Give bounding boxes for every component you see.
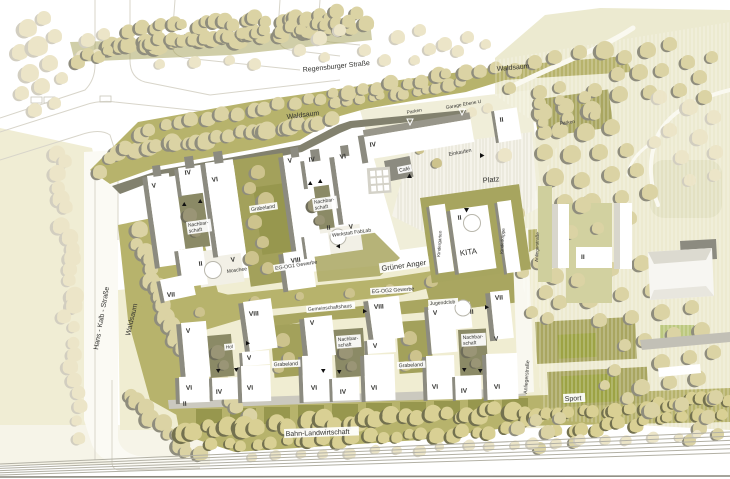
svg-text:VI: VI xyxy=(211,176,218,184)
svg-text:IV: IV xyxy=(461,388,468,395)
svg-text:VIII: VIII xyxy=(249,310,259,318)
svg-text:IV: IV xyxy=(216,389,223,396)
svg-text:schaft: schaft xyxy=(463,340,477,347)
svg-text:VI: VI xyxy=(339,153,346,161)
svg-text:Platz: Platz xyxy=(482,174,500,185)
svg-text:VIII: VIII xyxy=(374,303,384,311)
svg-text:VI: VI xyxy=(494,384,501,391)
svg-text:Grabeland: Grabeland xyxy=(399,362,424,369)
svg-text:IV: IV xyxy=(340,389,347,396)
svg-text:VII: VII xyxy=(167,292,176,299)
svg-text:Grabeland: Grabeland xyxy=(274,361,299,368)
svg-text:Anliegerstraße: Anliegerstraße xyxy=(534,232,540,262)
svg-text:Sport: Sport xyxy=(565,395,582,403)
svg-text:schaft: schaft xyxy=(338,342,352,349)
svg-text:II: II xyxy=(581,254,585,261)
svg-text:II: II xyxy=(183,401,187,408)
svg-text:II: II xyxy=(470,309,474,316)
svg-text:Hof: Hof xyxy=(226,344,234,350)
svg-text:VII: VII xyxy=(495,295,504,302)
svg-text:VI: VI xyxy=(311,385,318,392)
svg-text:VI: VI xyxy=(247,385,254,392)
svg-text:VI: VI xyxy=(186,385,193,392)
svg-text:VI: VI xyxy=(371,385,378,392)
svg-text:VI: VI xyxy=(432,384,439,391)
svg-text:VIII: VIII xyxy=(290,257,301,265)
